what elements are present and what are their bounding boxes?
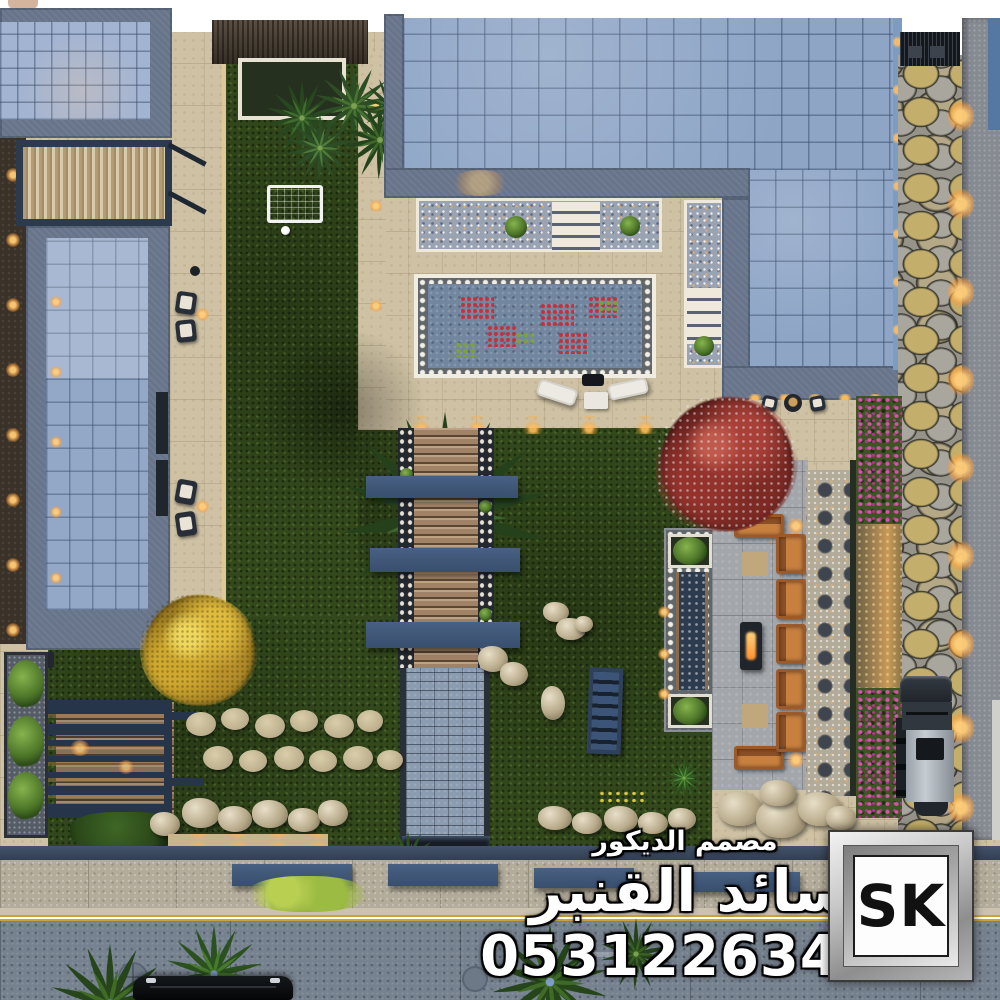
stepping-stone xyxy=(290,710,318,732)
chair-cushion xyxy=(813,398,823,408)
planter-bush xyxy=(673,537,707,565)
fire-flame xyxy=(746,632,756,660)
pergola-light xyxy=(70,740,90,756)
facade-window xyxy=(156,460,168,516)
wall-light xyxy=(6,558,20,572)
stepping-stone xyxy=(203,746,233,770)
sk-logo: SK xyxy=(828,830,974,982)
armchair xyxy=(175,319,197,343)
yellow-tree xyxy=(140,594,258,706)
flower-petals xyxy=(558,332,588,354)
wall-lower-edge xyxy=(992,700,1000,840)
water-trough xyxy=(676,572,708,690)
paver-pad xyxy=(742,704,768,728)
ac-vent xyxy=(908,46,922,58)
stepping-stone xyxy=(274,746,304,770)
side-table-lamp xyxy=(196,500,209,513)
palm-plant xyxy=(328,44,390,106)
boulder xyxy=(500,662,528,686)
pergola-beam xyxy=(38,726,172,735)
gravel-bush xyxy=(620,216,640,236)
stepping-stone xyxy=(221,708,249,730)
roof-border-glow xyxy=(450,170,510,196)
boulder xyxy=(182,798,220,828)
stepping-stone xyxy=(377,750,403,770)
gravel-bush xyxy=(505,216,527,238)
eave-light xyxy=(50,572,62,584)
boulder xyxy=(150,812,180,836)
outdoor-sofa xyxy=(776,712,806,752)
gravel-bush xyxy=(694,336,714,356)
car-roof-line xyxy=(150,986,276,988)
wall-sconce-glow xyxy=(948,276,974,308)
facade-window xyxy=(156,392,168,454)
planter-bush xyxy=(8,660,44,708)
main-roof-wing-tiles xyxy=(748,170,895,370)
serving-tray xyxy=(582,374,604,386)
candle-light xyxy=(658,648,670,660)
stepping-stone xyxy=(239,750,267,772)
outdoor-sofa xyxy=(776,534,806,574)
wall-light xyxy=(6,298,20,312)
car-windshield-glint xyxy=(146,978,156,983)
wall-sconce-glow xyxy=(948,628,974,660)
pergola-light xyxy=(118,760,134,774)
car-windshield-glint xyxy=(270,978,280,983)
boulder xyxy=(760,780,796,806)
palm-plant xyxy=(248,76,320,148)
stepping-stone xyxy=(309,750,337,772)
planter-bush xyxy=(673,697,707,725)
stepping-stone xyxy=(343,746,373,770)
wall-blue-trim xyxy=(988,18,1000,130)
street-shrub xyxy=(110,870,214,974)
paver-pad xyxy=(742,552,768,576)
wall-sconce-glow xyxy=(948,452,974,484)
wall-light xyxy=(6,233,20,247)
sk-logo-text: SK xyxy=(853,855,949,957)
wall-sconce-glow xyxy=(948,100,974,132)
outdoor-sofa xyxy=(776,624,806,664)
stepping-stone xyxy=(186,712,216,736)
stepping-stone xyxy=(255,714,285,738)
wall-sconce-glow xyxy=(948,188,974,220)
main-roof-tiles xyxy=(403,18,895,170)
flower-petals xyxy=(460,296,494,320)
bbq-base xyxy=(914,802,948,816)
armchair xyxy=(174,511,197,538)
wall-light xyxy=(6,493,20,507)
corner-roof-tiles xyxy=(0,22,150,120)
wall-light xyxy=(6,623,20,637)
chair-cushion xyxy=(179,516,192,531)
side-table-lamp xyxy=(196,308,209,321)
patio-fern xyxy=(640,734,684,778)
planter-bush xyxy=(8,716,44,768)
bougainvillea-top xyxy=(856,396,902,524)
flower-petals xyxy=(487,325,517,347)
gravel-plate-strip xyxy=(806,470,852,796)
bridge-slab xyxy=(370,548,520,572)
sk-logo-frame: SK xyxy=(843,845,959,967)
boulder xyxy=(541,686,565,720)
side-cube-table xyxy=(584,392,608,409)
pergola-arm xyxy=(170,778,204,786)
bridge-slab xyxy=(366,622,520,648)
wall-sconce-glow xyxy=(948,364,974,396)
candle-light xyxy=(658,688,670,700)
deck-plant xyxy=(479,500,492,513)
soccer-ball xyxy=(281,226,290,235)
stepping-stone xyxy=(324,714,354,738)
parked-car xyxy=(133,976,293,1000)
planter-bush xyxy=(8,772,44,820)
gravel-steps xyxy=(552,202,600,250)
bbq-mid xyxy=(902,702,952,730)
wall-sconce-glow xyxy=(948,540,974,572)
eave-light xyxy=(50,296,62,308)
wall-light xyxy=(6,428,20,442)
watermark-phone: 0531226345 xyxy=(470,928,890,990)
eave-light xyxy=(50,366,62,378)
curb-plants xyxy=(248,876,366,912)
planter-pot xyxy=(190,266,200,276)
main-roof-border-inner xyxy=(722,198,750,370)
ac-vent xyxy=(930,46,944,58)
armchair xyxy=(174,478,198,505)
outdoor-sofa xyxy=(776,669,806,709)
lily-pads xyxy=(598,300,618,314)
bbq-hood xyxy=(900,676,952,702)
slatted-sunbed xyxy=(587,667,624,754)
stepping-stone xyxy=(357,710,383,732)
outdoor-sofa xyxy=(776,579,806,619)
render-canvas: مصمم الديكور سائد القنبر 0531226345 SK xyxy=(0,0,1000,1000)
eave-light xyxy=(50,436,62,448)
street-shrub xyxy=(0,876,110,1000)
main-roof-border-bottom xyxy=(384,168,750,198)
bistro-table xyxy=(784,394,802,412)
louver-pergola xyxy=(16,140,172,226)
skylight-highlight xyxy=(46,238,148,378)
lily-pads xyxy=(455,342,477,357)
soccer-goal xyxy=(267,185,323,223)
chair-cushion xyxy=(179,484,192,499)
lit-stone-wall xyxy=(856,524,902,688)
bbq-window xyxy=(916,738,944,760)
candle-light xyxy=(658,606,670,618)
deck-plant xyxy=(479,608,492,621)
armchair xyxy=(175,291,198,316)
boulder xyxy=(318,800,348,826)
slatted-pergola xyxy=(38,700,172,818)
pergola-beam xyxy=(38,786,172,795)
boulder xyxy=(575,616,593,632)
bridge-slab xyxy=(366,476,518,498)
boulder xyxy=(218,806,252,832)
wall-light xyxy=(6,363,20,377)
bbq-handle xyxy=(906,712,948,715)
path-light xyxy=(370,200,382,212)
patio-lantern xyxy=(788,752,804,768)
patio-lantern xyxy=(788,518,804,534)
boulder xyxy=(252,800,288,828)
chair-cushion xyxy=(180,324,192,337)
boulder xyxy=(288,808,320,832)
yellow-flowers xyxy=(598,790,646,806)
flower-petals xyxy=(540,303,574,327)
eave-light xyxy=(50,506,62,518)
lily-pads xyxy=(515,332,533,345)
chair-cushion xyxy=(180,296,193,310)
bistro-chair xyxy=(809,395,826,412)
